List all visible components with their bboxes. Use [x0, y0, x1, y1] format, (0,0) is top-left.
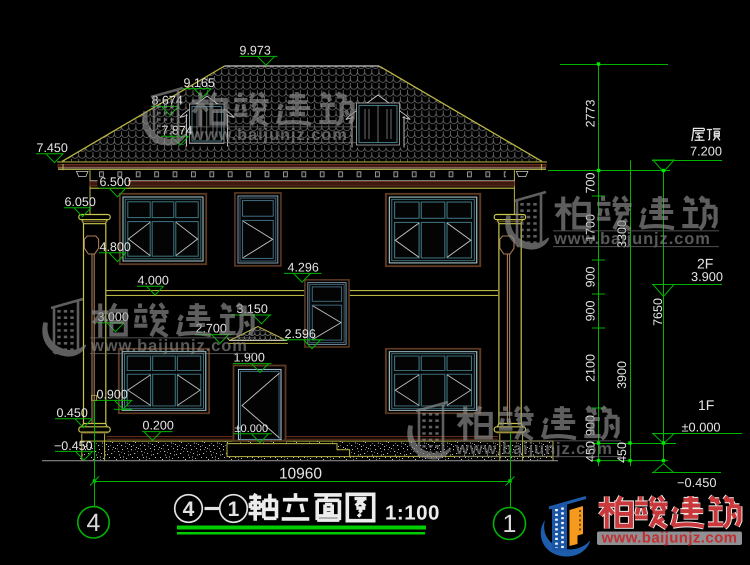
svg-text:±0.000: ±0.000 [682, 419, 721, 434]
svg-text:1: 1 [503, 510, 517, 538]
svg-text:2100: 2100 [584, 354, 598, 382]
svg-text:700: 700 [584, 173, 598, 194]
svg-text:4: 4 [183, 498, 195, 521]
svg-text:10960: 10960 [279, 466, 322, 483]
svg-text:4.800: 4.800 [100, 240, 131, 254]
svg-text:3900: 3900 [615, 361, 629, 389]
svg-text:0.900: 0.900 [97, 387, 128, 401]
svg-text:9.165: 9.165 [184, 76, 215, 90]
svg-text:7.450: 7.450 [37, 141, 68, 155]
svg-text:−0.450: −0.450 [677, 475, 717, 490]
svg-text:2773: 2773 [584, 100, 598, 128]
svg-text:900: 900 [584, 301, 598, 322]
svg-text:4.000: 4.000 [138, 273, 169, 287]
svg-text:0.450: 0.450 [57, 406, 88, 420]
svg-text:2.596: 2.596 [285, 327, 316, 341]
svg-text:7650: 7650 [651, 298, 665, 326]
svg-text:www.baijunjz.com: www.baijunjz.com [601, 530, 738, 547]
svg-text:9.973: 9.973 [240, 44, 271, 58]
svg-text:6.500: 6.500 [100, 175, 131, 189]
svg-text:1: 1 [228, 498, 240, 521]
svg-text:−0.450: −0.450 [54, 439, 93, 453]
svg-text:6.050: 6.050 [65, 195, 96, 209]
svg-text:1:100: 1:100 [385, 502, 440, 525]
svg-text:±0.000: ±0.000 [235, 423, 269, 435]
svg-text:4.296: 4.296 [288, 260, 319, 274]
svg-text:900: 900 [584, 267, 598, 288]
svg-text:0.200: 0.200 [143, 419, 174, 433]
svg-text:3.900: 3.900 [691, 269, 723, 284]
svg-text:450: 450 [615, 442, 629, 463]
svg-text:1F: 1F [698, 397, 714, 413]
svg-text:7.200: 7.200 [690, 144, 722, 159]
svg-text:4: 4 [87, 509, 101, 537]
